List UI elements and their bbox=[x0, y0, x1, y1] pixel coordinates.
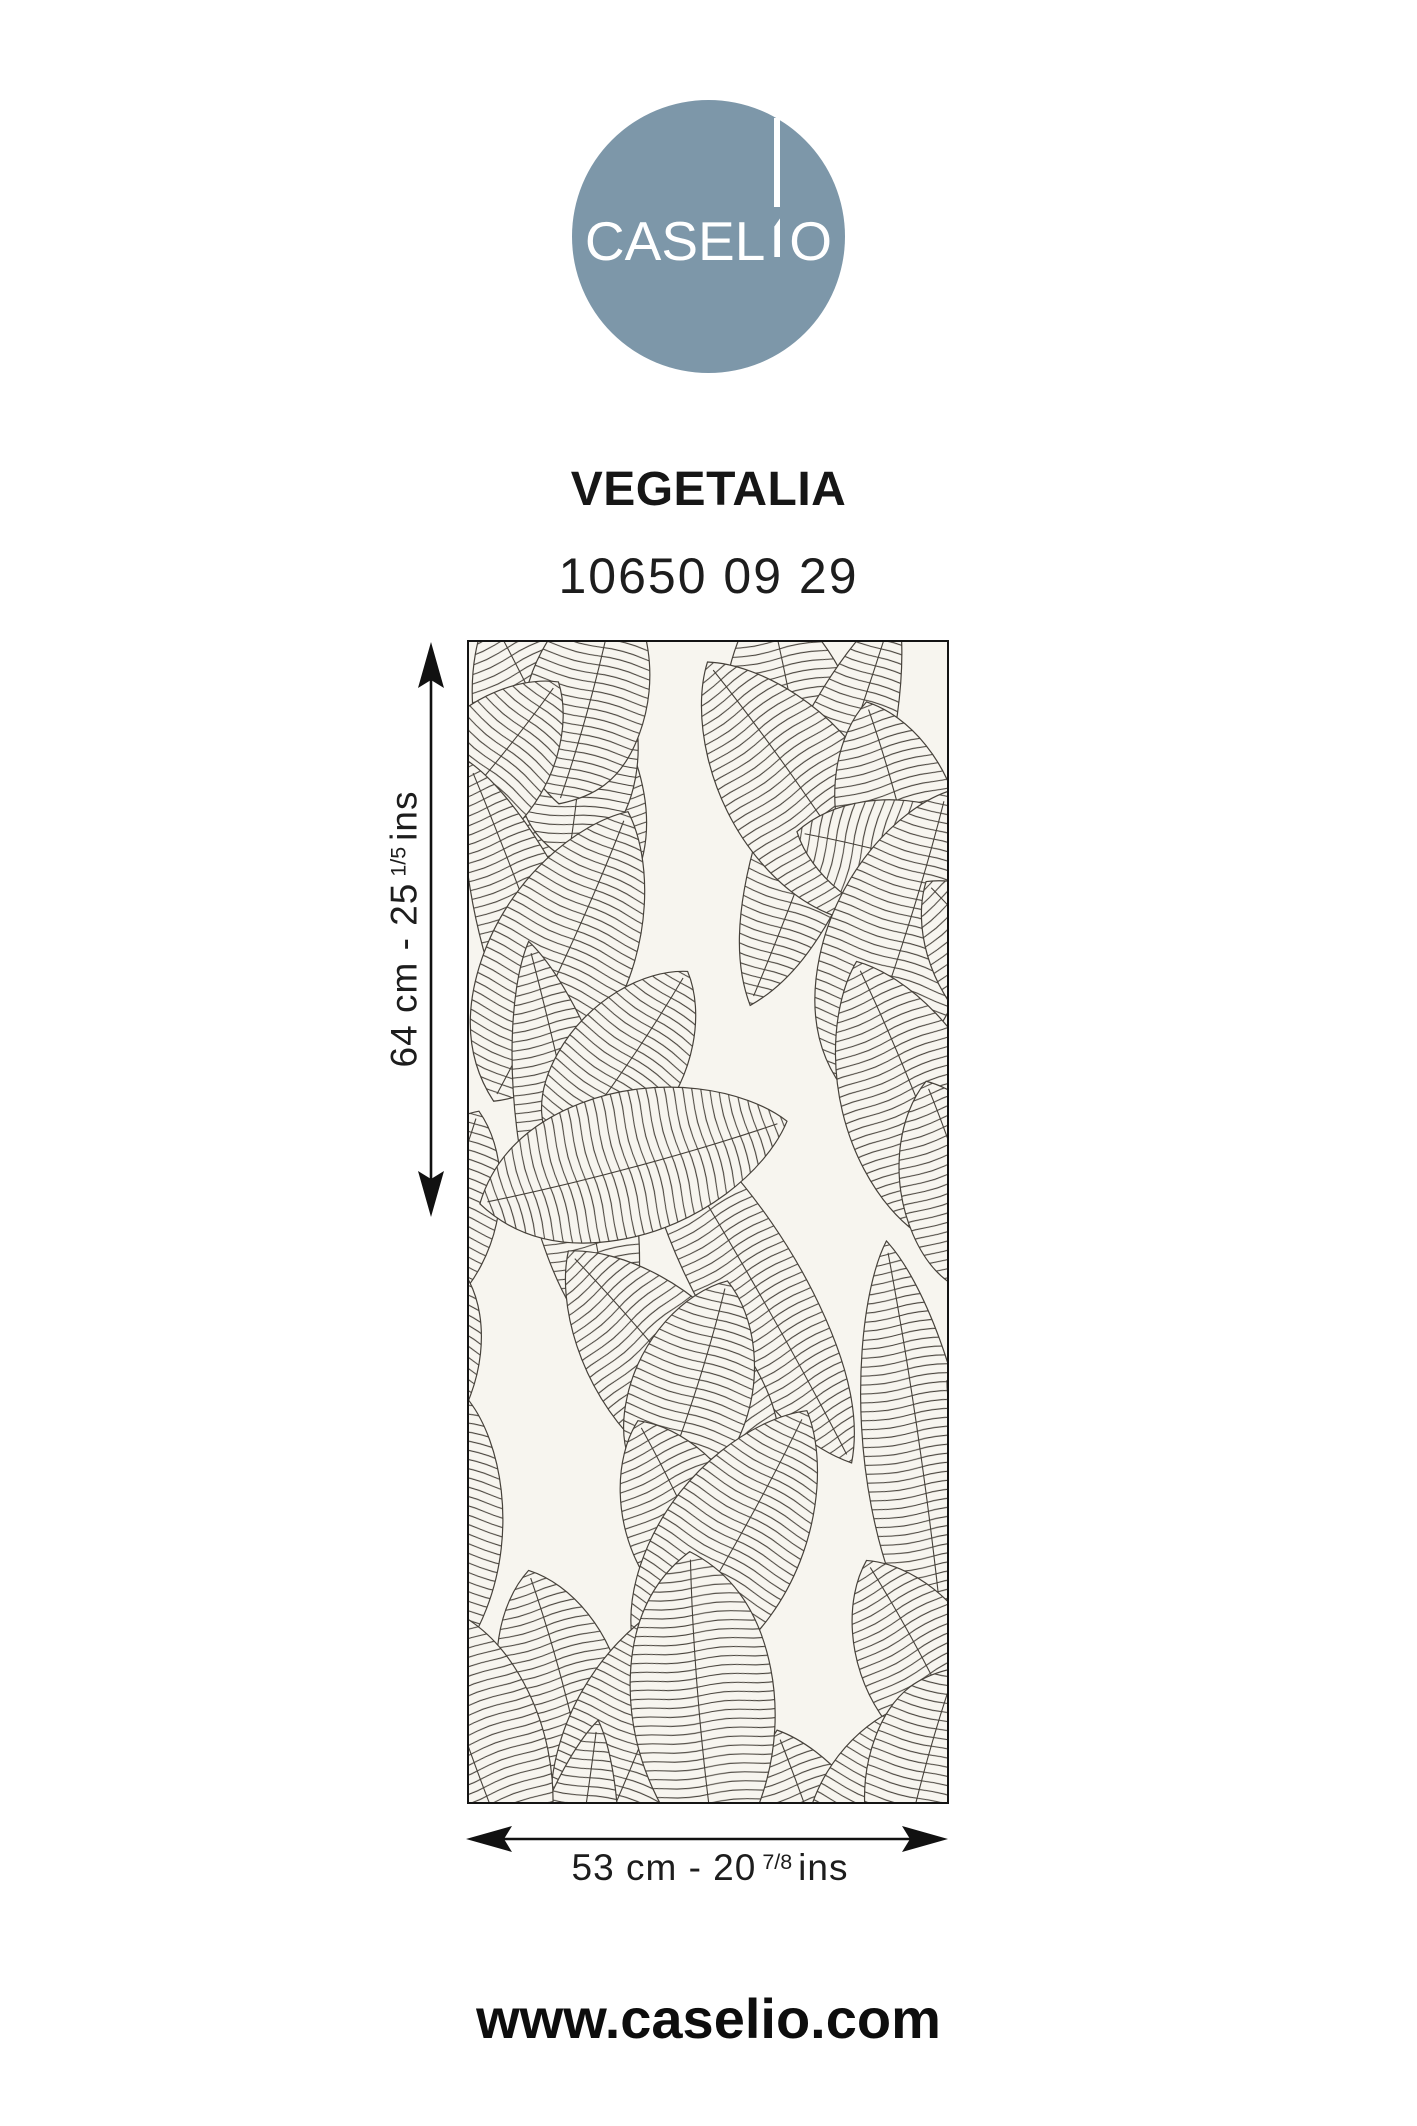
website-url: www.caselio.com bbox=[0, 1991, 1417, 2047]
wallpaper-swatch bbox=[467, 640, 949, 1804]
brand-wordmark-pre: CASEL bbox=[585, 214, 765, 269]
product-sheet: CASEL O VEGETALIA 10650 09 29 bbox=[0, 0, 1417, 2126]
brand-wordmark-post: O bbox=[789, 214, 832, 269]
width-fraction: 7/8 bbox=[762, 1850, 792, 1874]
width-dimension-label: 53 cm - 207/8ins bbox=[572, 1849, 849, 1886]
height-fraction: 1/5 bbox=[387, 847, 411, 877]
width-value: 53 cm - 20 bbox=[572, 1847, 757, 1888]
height-value: 64 cm - 25 bbox=[384, 883, 425, 1068]
brand-logo: CASEL O bbox=[572, 100, 845, 373]
logo-i-bar-icon bbox=[765, 214, 789, 269]
brand-wordmark: CASEL O bbox=[572, 214, 845, 269]
height-unit: ins bbox=[384, 791, 425, 841]
leaf-pattern bbox=[469, 642, 947, 1802]
product-title: VEGETALIA bbox=[0, 466, 1417, 514]
product-reference: 10650 09 29 bbox=[0, 551, 1417, 601]
width-unit: ins bbox=[798, 1847, 848, 1888]
height-dimension-label: 64 cm - 251/5ins bbox=[386, 791, 423, 1068]
